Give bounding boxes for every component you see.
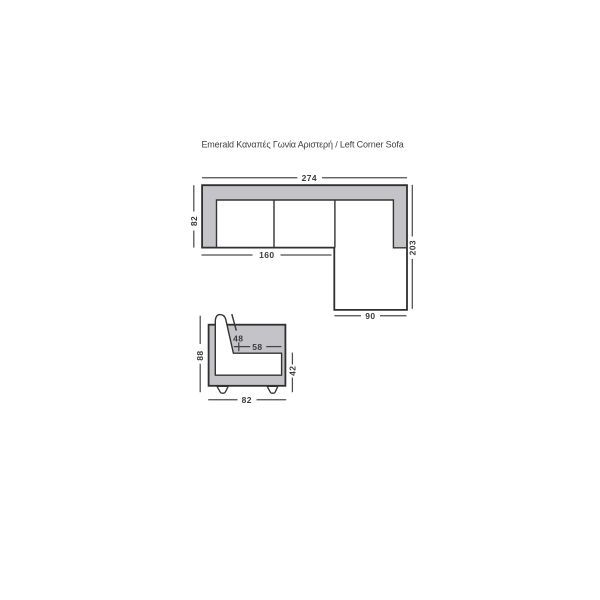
svg-text:274: 274 — [302, 173, 317, 183]
svg-text:160: 160 — [259, 250, 274, 260]
svg-text:88: 88 — [195, 350, 205, 360]
svg-text:82: 82 — [189, 216, 199, 226]
svg-text:90: 90 — [365, 311, 375, 321]
svg-text:Emerald Καναπές Γωνία Αριστερή: Emerald Καναπές Γωνία Αριστερή / Left Co… — [201, 139, 403, 149]
svg-text:42: 42 — [287, 366, 297, 376]
svg-text:58: 58 — [252, 342, 262, 352]
svg-text:48: 48 — [233, 333, 243, 343]
svg-text:203: 203 — [408, 240, 418, 255]
svg-text:82: 82 — [242, 395, 252, 405]
